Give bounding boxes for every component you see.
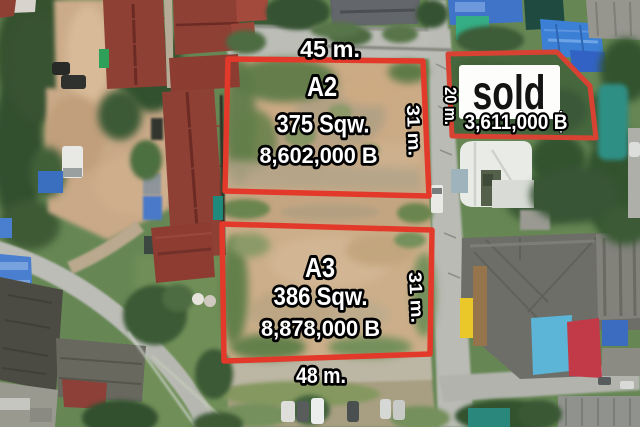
svg-text:8,602,000 B: 8,602,000 B — [260, 143, 378, 168]
svg-text:20 m.: 20 m. — [441, 87, 459, 125]
svg-text:48 m.: 48 m. — [296, 363, 346, 388]
svg-text:375 Sqw.: 375 Sqw. — [277, 111, 370, 139]
svg-text:386 Sqw.: 386 Sqw. — [274, 283, 368, 311]
svg-text:31 m.: 31 m. — [403, 105, 425, 157]
svg-text:45 m.: 45 m. — [300, 36, 360, 62]
svg-text:3,611,000 B: 3,611,000 B — [465, 111, 568, 134]
svg-text:8,878,000 B: 8,878,000 B — [261, 316, 380, 341]
svg-text:A2: A2 — [307, 71, 337, 102]
svg-text:31 m.: 31 m. — [405, 271, 428, 323]
svg-text:A3: A3 — [305, 252, 335, 283]
